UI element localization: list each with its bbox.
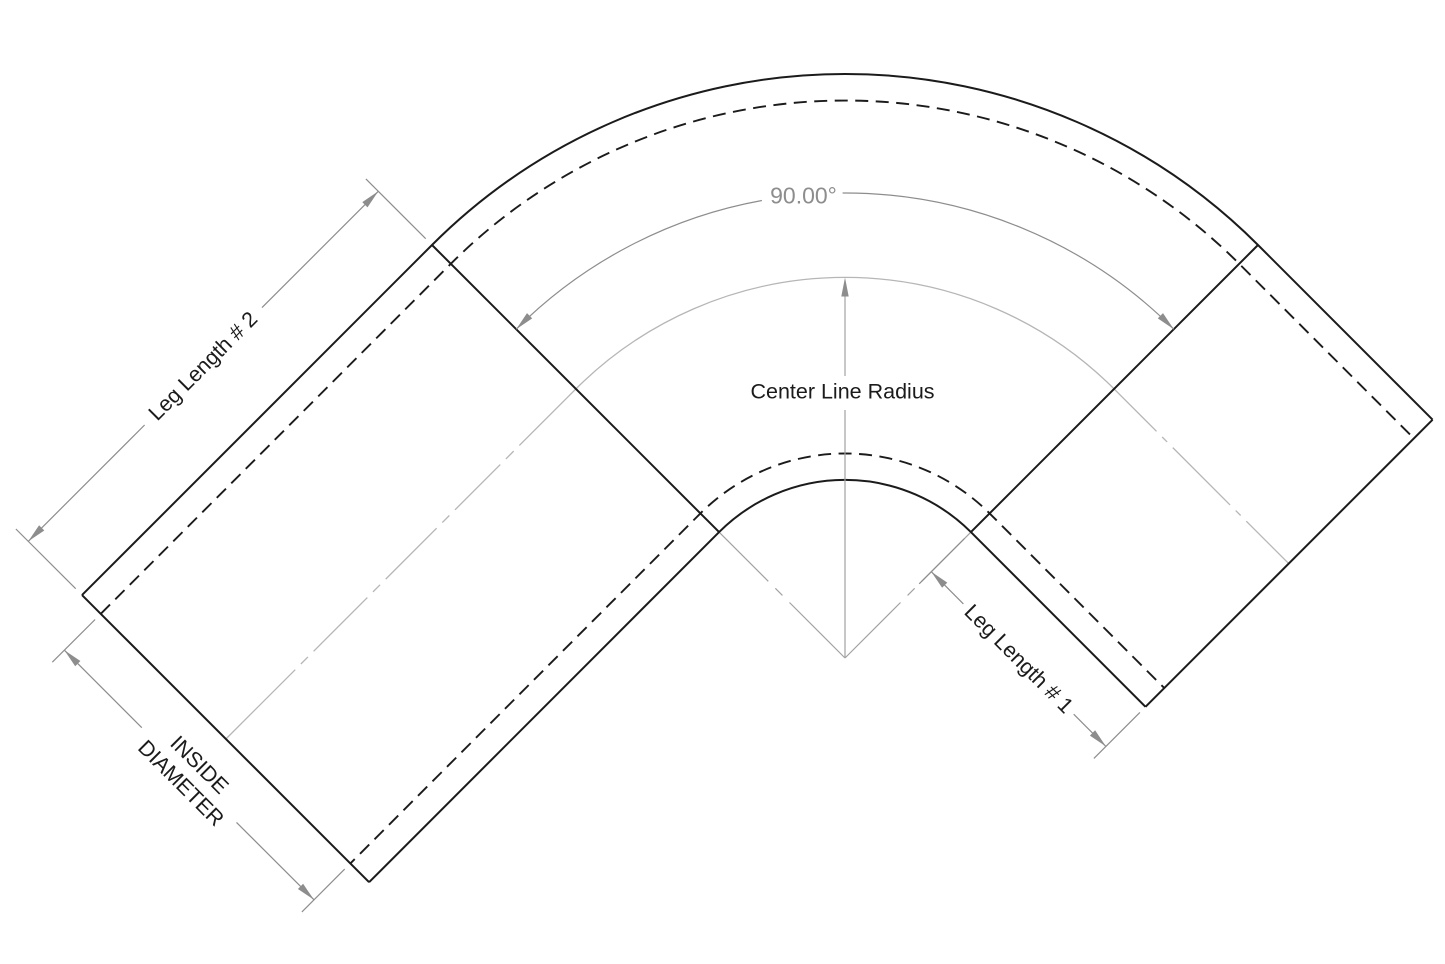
svg-text:Leg Length # 1: Leg Length # 1 [960,600,1078,718]
svg-text:Leg Length # 2: Leg Length # 2 [144,307,262,425]
svg-text:Center Line Radius: Center Line Radius [750,380,934,404]
svg-text:90.00°: 90.00° [770,183,837,209]
